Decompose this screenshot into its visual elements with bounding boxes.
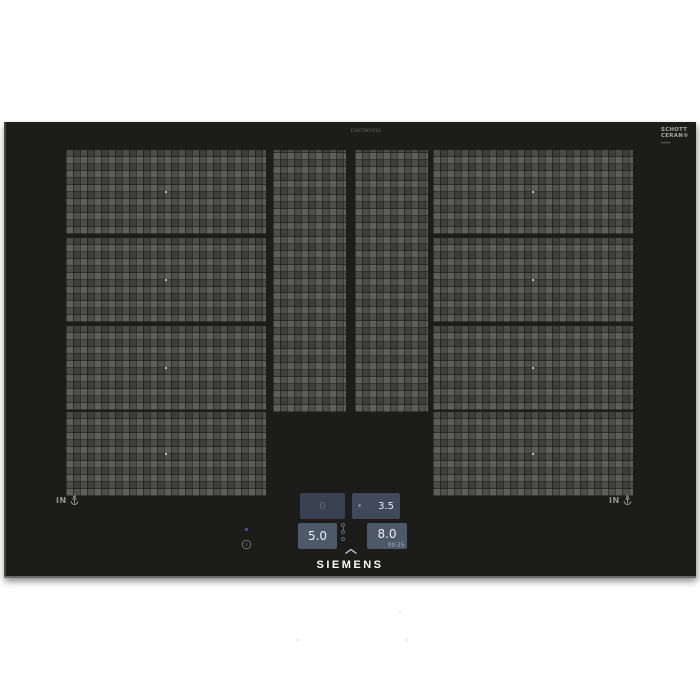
cooking-zone-center-left bbox=[273, 150, 346, 412]
model-label: EX875KYV1E bbox=[332, 128, 400, 133]
glass-brand-line2: CERAN® bbox=[661, 133, 689, 139]
induction-label: IN bbox=[609, 496, 620, 505]
zone-display-top-right[interactable]: 3.5 bbox=[352, 493, 400, 519]
glass-brand-label: SCHOTT CERAN® bbox=[661, 127, 689, 143]
zone-display-bottom-right[interactable]: 8.0 00:25 bbox=[367, 523, 407, 549]
cooking-zone-left-2 bbox=[66, 238, 266, 322]
power-level-value: 5.0 bbox=[308, 529, 327, 543]
zone-center-dot bbox=[532, 453, 534, 455]
zone-center-dot bbox=[532, 279, 534, 281]
power-led bbox=[245, 528, 248, 531]
anchor-icon bbox=[70, 495, 79, 505]
indicator-mark bbox=[399, 611, 401, 613]
induction-marking-left: IN bbox=[56, 495, 79, 505]
zone-center-dot bbox=[165, 453, 167, 455]
cooking-zone-left-3 bbox=[66, 326, 266, 410]
info-icon: i bbox=[242, 540, 251, 549]
induction-marking-right: IN bbox=[609, 495, 632, 505]
induction-label: IN bbox=[56, 496, 67, 505]
power-level-value: 0 bbox=[319, 501, 325, 512]
cooking-zone-left-4 bbox=[66, 412, 266, 496]
zone-center-dot bbox=[165, 191, 167, 193]
key-icon[interactable] bbox=[341, 523, 345, 527]
cooking-zone-right-4 bbox=[433, 412, 633, 496]
cooking-zone-right-2 bbox=[433, 238, 633, 322]
pause-icon[interactable] bbox=[341, 530, 345, 534]
zone-center-dot bbox=[532, 191, 534, 193]
anchor-icon bbox=[623, 495, 632, 505]
cooking-zone-center-right bbox=[355, 150, 428, 412]
zone-display-bottom-left[interactable]: 5.0 bbox=[298, 523, 337, 549]
cooking-zone-left-1 bbox=[66, 150, 266, 234]
cooking-zone-right-1 bbox=[433, 150, 633, 234]
indicator-mark bbox=[406, 639, 408, 641]
power-level-value: 8.0 bbox=[377, 527, 396, 541]
zone-center-dot bbox=[532, 367, 534, 369]
indicator-mark bbox=[296, 639, 298, 641]
panel-function-icons bbox=[337, 523, 349, 541]
zone-display-top-left[interactable]: 0 bbox=[300, 493, 345, 519]
zone-select-dot-icon bbox=[358, 504, 361, 507]
chevron-up-icon[interactable] bbox=[344, 548, 358, 555]
brand-logo: SIEMENS bbox=[4, 559, 696, 571]
induction-cooktop: EX875KYV1E SCHOTT CERAN® IN bbox=[4, 122, 696, 578]
zone-center-dot bbox=[165, 279, 167, 281]
power-level-value: 3.5 bbox=[378, 501, 394, 512]
timer-icon[interactable] bbox=[341, 537, 345, 541]
glass-brand-subline bbox=[661, 142, 671, 143]
zone-center-dot bbox=[165, 367, 167, 369]
product-photo: EX875KYV1E SCHOTT CERAN® IN bbox=[0, 0, 700, 700]
timer-value: 00:25 bbox=[388, 542, 405, 548]
cooking-zone-right-3 bbox=[433, 326, 633, 410]
